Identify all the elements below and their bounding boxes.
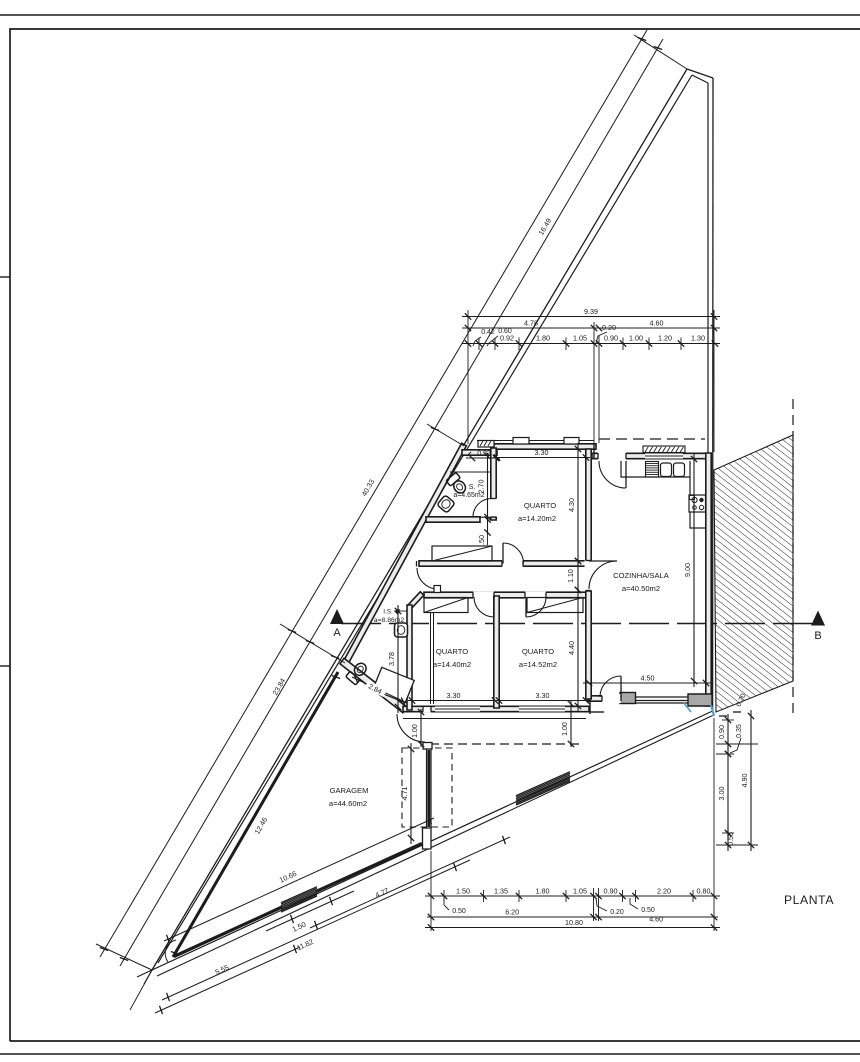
svg-text:1.05: 1.05: [573, 334, 587, 343]
svg-text:0.20: 0.20: [602, 323, 616, 332]
svg-text:2.70: 2.70: [477, 480, 486, 494]
svg-text:B: B: [814, 630, 821, 642]
svg-text:0.60: 0.60: [498, 328, 512, 335]
svg-text:9.00: 9.00: [683, 563, 692, 577]
svg-text:1.20: 1.20: [658, 334, 672, 343]
svg-text:0.20: 0.20: [610, 909, 624, 916]
svg-text:0.35: 0.35: [736, 724, 743, 738]
svg-text:1.00: 1.00: [412, 724, 419, 738]
svg-text:1.00: 1.00: [629, 334, 643, 343]
svg-text:a=44.60m2: a=44.60m2: [329, 799, 367, 808]
svg-text:1.35: 1.35: [494, 887, 508, 896]
svg-text:3.78: 3.78: [387, 652, 396, 666]
svg-text:a=8.86m2: a=8.86m2: [374, 617, 405, 624]
svg-text:S.: S.: [469, 484, 476, 491]
svg-text:6.20: 6.20: [505, 908, 519, 917]
svg-text:3.00: 3.00: [717, 787, 726, 801]
svg-text:3.30: 3.30: [536, 691, 550, 700]
svg-text:4.90: 4.90: [740, 774, 749, 788]
svg-text:1.05: 1.05: [573, 887, 587, 896]
svg-text:QUARTO: QUARTO: [522, 647, 554, 656]
svg-text:9.39: 9.39: [584, 307, 598, 316]
svg-text:1.50: 1.50: [456, 887, 470, 896]
svg-text:4.40: 4.40: [567, 641, 576, 655]
svg-text:1.80: 1.80: [536, 334, 550, 343]
svg-text:QUARTO: QUARTO: [524, 501, 556, 510]
svg-text:1.80: 1.80: [536, 887, 550, 896]
svg-text:3.30: 3.30: [535, 448, 549, 457]
svg-text:I.S.: I.S.: [383, 609, 393, 616]
svg-text:a=14.20m2: a=14.20m2: [518, 514, 556, 523]
svg-text:0.50: 0.50: [452, 908, 466, 915]
svg-text:COZINHA/SALA: COZINHA/SALA: [613, 571, 670, 580]
svg-text:0.90: 0.90: [604, 887, 618, 896]
svg-text:0.55: 0.55: [726, 832, 735, 846]
svg-text:0.50: 0.50: [641, 907, 655, 914]
svg-text:.50: .50: [477, 535, 486, 545]
svg-text:4.60: 4.60: [649, 915, 663, 924]
svg-text:a=40.50m2: a=40.50m2: [622, 584, 660, 593]
svg-text:1.00: 1.00: [562, 722, 569, 736]
svg-text:0.80: 0.80: [697, 887, 711, 896]
svg-text:4.50: 4.50: [641, 674, 655, 683]
svg-text:4.78: 4.78: [524, 319, 538, 328]
svg-text:GARAGEM: GARAGEM: [330, 786, 369, 795]
svg-text:1.30: 1.30: [691, 334, 705, 343]
svg-text:1.10: 1.10: [568, 569, 575, 583]
svg-text:10.80: 10.80: [565, 918, 583, 927]
svg-text:4.60: 4.60: [650, 319, 664, 328]
svg-text:4.71: 4.71: [400, 787, 409, 801]
svg-text:3.30: 3.30: [447, 691, 461, 700]
svg-text:A: A: [333, 627, 341, 639]
svg-text:a=14.40m2: a=14.40m2: [433, 660, 471, 669]
svg-text:2.20: 2.20: [657, 887, 671, 896]
svg-text:0.90: 0.90: [717, 725, 726, 739]
svg-text:4.30: 4.30: [567, 498, 576, 512]
svg-text:PLANTA: PLANTA: [784, 893, 834, 907]
svg-text:a=14.52m2: a=14.52m2: [519, 660, 557, 669]
svg-text:0.90: 0.90: [604, 334, 618, 343]
svg-text:QUARTO: QUARTO: [436, 647, 468, 656]
